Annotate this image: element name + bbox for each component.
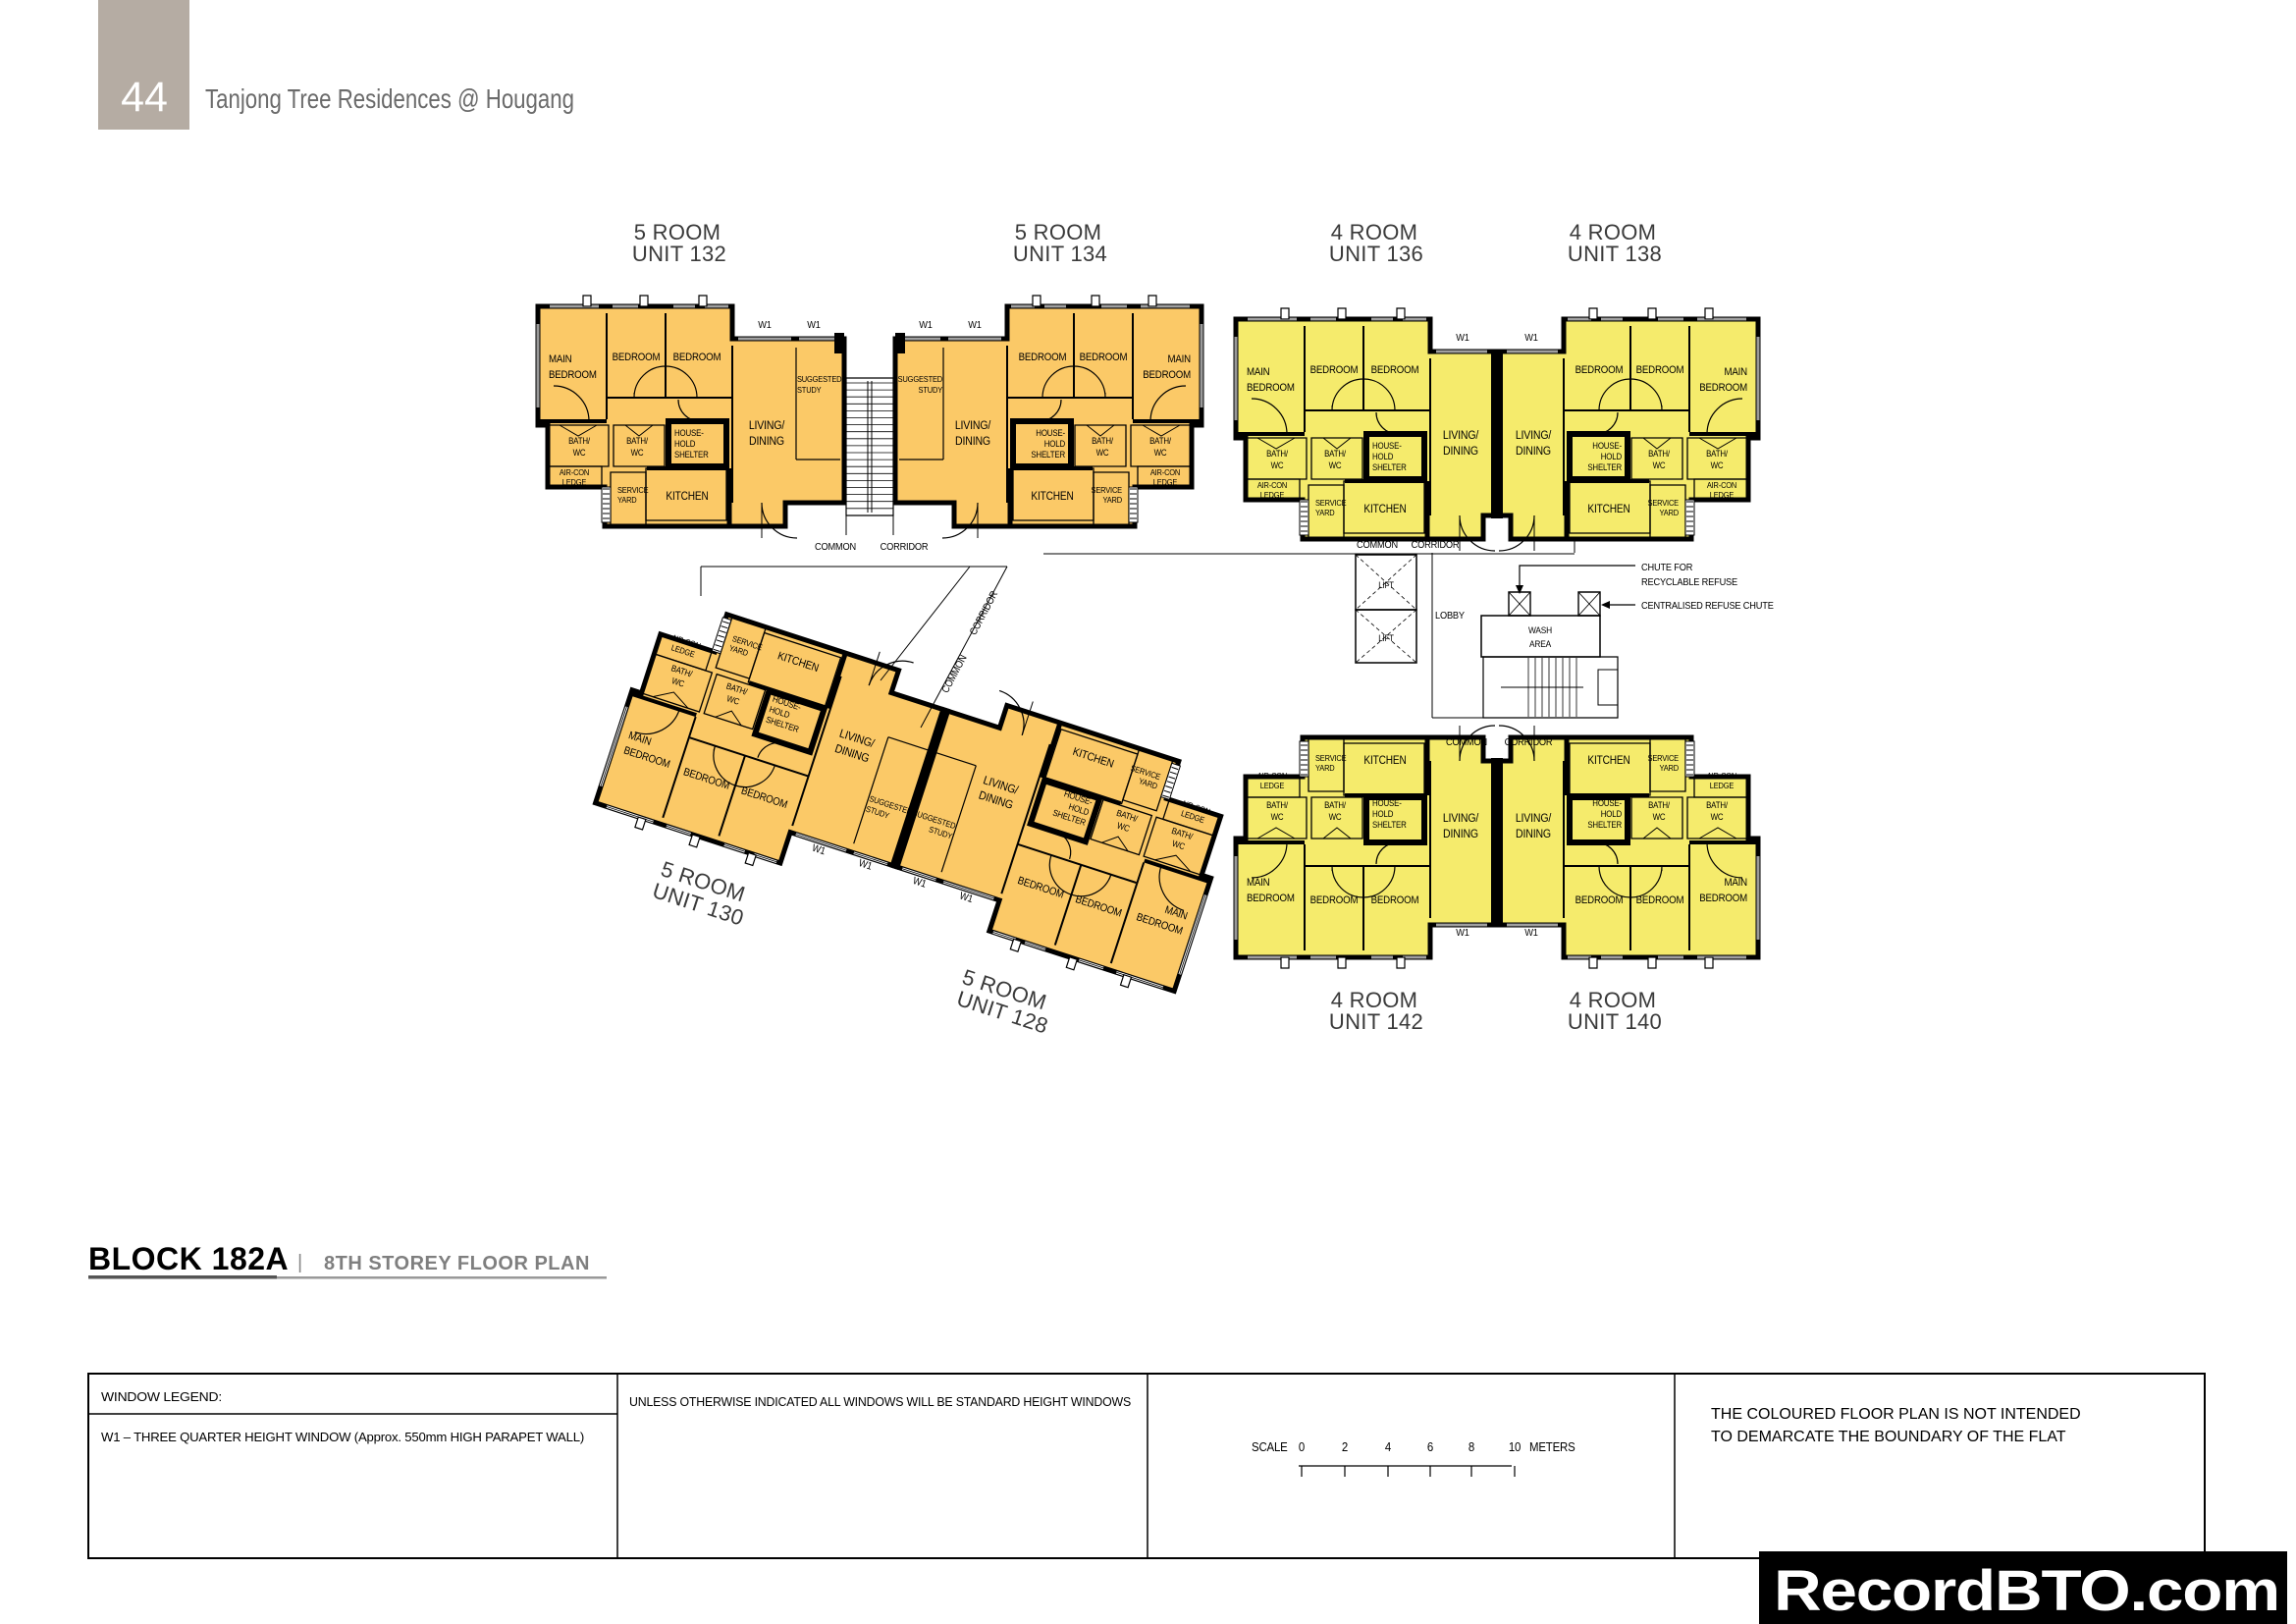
svg-text:HOLD: HOLD	[1372, 452, 1393, 462]
svg-text:MAIN: MAIN	[1247, 367, 1270, 379]
svg-text:AIR-CON: AIR-CON	[1707, 772, 1737, 782]
svg-text:BEDROOM: BEDROOM	[613, 352, 661, 364]
svg-text:CENTRALISED REFUSE CHUTE: CENTRALISED REFUSE CHUTE	[1641, 601, 1774, 613]
svg-text:BLOCK 182A: BLOCK 182A	[88, 1241, 289, 1276]
svg-text:BATH/: BATH/	[1266, 800, 1289, 811]
svg-text:SERVICE: SERVICE	[1648, 499, 1679, 509]
svg-text:BEDROOM: BEDROOM	[1699, 893, 1747, 905]
svg-text:BEDROOM: BEDROOM	[549, 370, 597, 382]
svg-text:BEDROOM: BEDROOM	[1371, 365, 1419, 377]
svg-text:THE COLOURED FLOOR PLAN IS NOT: THE COLOURED FLOOR PLAN IS NOT INTENDED	[1711, 1406, 2081, 1423]
svg-text:AIR-CON: AIR-CON	[1150, 468, 1181, 478]
svg-text:LIVING/: LIVING/	[1516, 429, 1552, 442]
svg-text:MAIN: MAIN	[1167, 354, 1191, 366]
svg-text:LEDGE: LEDGE	[562, 478, 586, 488]
svg-text:HOUSE-: HOUSE-	[1372, 798, 1402, 809]
svg-text:LIVING/: LIVING/	[749, 419, 785, 432]
svg-text:COMMON: COMMON	[1446, 737, 1487, 749]
svg-text:W1: W1	[1524, 928, 1538, 940]
svg-text:HOUSE-: HOUSE-	[1592, 441, 1622, 452]
svg-text:W1: W1	[807, 320, 821, 332]
svg-text:CORRIDOR: CORRIDOR	[1412, 540, 1460, 552]
svg-text:LEDGE: LEDGE	[1260, 491, 1284, 501]
svg-text:W1: W1	[968, 320, 982, 332]
svg-text:HOUSE-: HOUSE-	[1036, 428, 1065, 439]
svg-text:AIR-CON: AIR-CON	[1257, 481, 1288, 491]
svg-text:WC: WC	[1154, 448, 1167, 459]
svg-text:HOUSE-: HOUSE-	[674, 428, 704, 439]
svg-text:BEDROOM: BEDROOM	[1080, 352, 1128, 364]
svg-text:BEDROOM: BEDROOM	[1310, 895, 1359, 907]
svg-text:4: 4	[1385, 1439, 1392, 1454]
svg-text:YARD: YARD	[1315, 509, 1335, 518]
svg-text:BEDROOM: BEDROOM	[1310, 365, 1359, 377]
svg-text:TO DEMARCATE THE BOUNDARY OF T: TO DEMARCATE THE BOUNDARY OF THE FLAT	[1711, 1429, 2066, 1445]
svg-text:HOLD: HOLD	[674, 439, 695, 450]
svg-text:DINING: DINING	[1443, 445, 1478, 458]
svg-text:44: 44	[121, 74, 168, 121]
svg-text:BEDROOM: BEDROOM	[1575, 365, 1624, 377]
svg-text:STUDY: STUDY	[797, 386, 822, 396]
svg-text:SERVICE: SERVICE	[1648, 754, 1679, 764]
svg-text:10: 10	[1509, 1439, 1522, 1454]
svg-text:DINING: DINING	[1516, 445, 1551, 458]
svg-text:MAIN: MAIN	[549, 354, 572, 366]
svg-text:UNIT 136: UNIT 136	[1329, 242, 1423, 266]
svg-text:YARD: YARD	[1659, 509, 1679, 518]
svg-text:HOUSE-: HOUSE-	[1372, 441, 1402, 452]
svg-text:WC: WC	[1329, 812, 1342, 823]
svg-text:LIVING/: LIVING/	[1516, 812, 1552, 825]
svg-text:DINING: DINING	[749, 435, 784, 448]
svg-text:BATH/: BATH/	[1648, 800, 1671, 811]
svg-text:BEDROOM: BEDROOM	[1371, 895, 1419, 907]
svg-text:CORRIDOR: CORRIDOR	[881, 542, 929, 554]
svg-text:8: 8	[1468, 1439, 1475, 1454]
svg-text:WC: WC	[1711, 812, 1724, 823]
svg-text:BEDROOM: BEDROOM	[673, 352, 721, 364]
svg-text:0: 0	[1299, 1439, 1306, 1454]
svg-text:BEDROOM: BEDROOM	[1247, 383, 1295, 395]
svg-text:DINING: DINING	[955, 435, 990, 448]
svg-text:LIVING/: LIVING/	[1443, 429, 1479, 442]
svg-text:WC: WC	[1329, 460, 1342, 471]
svg-text:AIR-CON: AIR-CON	[560, 468, 590, 478]
svg-text:LIFT: LIFT	[1378, 633, 1394, 644]
svg-text:UNIT 142: UNIT 142	[1329, 1009, 1423, 1034]
svg-text:SHELTER: SHELTER	[1587, 820, 1622, 831]
svg-text:UNIT 140: UNIT 140	[1568, 1009, 1662, 1034]
svg-text:BATH/: BATH/	[1324, 800, 1347, 811]
svg-text:KITCHEN: KITCHEN	[1587, 754, 1629, 767]
svg-text:METERS: METERS	[1529, 1439, 1575, 1454]
svg-text:BATH/: BATH/	[1092, 436, 1114, 447]
svg-text:SUGGESTED: SUGGESTED	[898, 375, 943, 385]
svg-text:MAIN: MAIN	[1247, 878, 1270, 890]
svg-text:UNIT 132: UNIT 132	[632, 242, 726, 266]
svg-text:MAIN: MAIN	[1724, 878, 1747, 890]
svg-text:MAIN: MAIN	[1724, 367, 1747, 379]
svg-text:|: |	[297, 1252, 302, 1273]
svg-text:6: 6	[1427, 1439, 1434, 1454]
svg-text:WC: WC	[573, 448, 586, 459]
svg-text:HOLD: HOLD	[1372, 809, 1393, 820]
svg-text:WASH: WASH	[1528, 625, 1552, 636]
svg-text:LIFT: LIFT	[1378, 580, 1394, 591]
svg-text:UNLESS OTHERWISE INDICATED ALL: UNLESS OTHERWISE INDICATED ALL WINDOWS W…	[629, 1394, 1131, 1409]
svg-text:LEDGE: LEDGE	[1710, 782, 1734, 791]
svg-text:UNIT 138: UNIT 138	[1568, 242, 1662, 266]
svg-text:LOBBY: LOBBY	[1435, 611, 1465, 623]
svg-text:W1 – THREE QUARTER HEIGHT WIND: W1 – THREE QUARTER HEIGHT WINDOW (Approx…	[101, 1431, 584, 1444]
svg-text:2: 2	[1342, 1439, 1349, 1454]
svg-text:SERVICE: SERVICE	[1315, 754, 1346, 764]
svg-text:BATH/: BATH/	[1324, 449, 1347, 460]
svg-text:SUGGESTED: SUGGESTED	[797, 375, 842, 385]
svg-text:LIVING/: LIVING/	[1443, 812, 1479, 825]
svg-text:SHELTER: SHELTER	[1587, 462, 1622, 473]
svg-text:COMMON: COMMON	[1357, 540, 1398, 552]
svg-text:BEDROOM: BEDROOM	[1247, 893, 1295, 905]
svg-text:BATH/: BATH/	[1706, 800, 1729, 811]
svg-text:WC: WC	[1711, 460, 1724, 471]
svg-text:RecordBTO.com: RecordBTO.com	[1774, 1559, 2279, 1623]
svg-text:8TH STOREY FLOOR PLAN: 8TH STOREY FLOOR PLAN	[324, 1253, 590, 1274]
svg-text:DINING: DINING	[1443, 828, 1478, 840]
svg-text:SHELTER: SHELTER	[1372, 820, 1407, 831]
svg-text:CHUTE FOR: CHUTE FOR	[1641, 563, 1692, 574]
svg-text:W1: W1	[1524, 333, 1538, 345]
svg-text:KITCHEN: KITCHEN	[1031, 490, 1073, 503]
svg-text:WC: WC	[1271, 460, 1284, 471]
svg-text:WC: WC	[631, 448, 644, 459]
svg-text:WC: WC	[1653, 460, 1666, 471]
svg-text:SHELTER: SHELTER	[674, 450, 709, 460]
svg-text:RECYCLABLE REFUSE: RECYCLABLE REFUSE	[1641, 577, 1738, 589]
svg-text:BATH/: BATH/	[626, 436, 649, 447]
svg-text:BATH/: BATH/	[1149, 436, 1172, 447]
svg-text:W1: W1	[1456, 333, 1469, 345]
svg-text:BEDROOM: BEDROOM	[1699, 383, 1747, 395]
svg-text:BATH/: BATH/	[1706, 449, 1729, 460]
svg-text:BATH/: BATH/	[1648, 449, 1671, 460]
svg-text:CORRIDOR: CORRIDOR	[1505, 737, 1553, 749]
svg-text:YARD: YARD	[1102, 496, 1122, 506]
svg-text:AIR-CON: AIR-CON	[1707, 481, 1737, 491]
svg-text:HOUSE-: HOUSE-	[1592, 798, 1622, 809]
svg-text:BATH/: BATH/	[568, 436, 591, 447]
svg-text:LEDGE: LEDGE	[1710, 491, 1734, 501]
svg-text:DINING: DINING	[1516, 828, 1551, 840]
svg-text:LEDGE: LEDGE	[1153, 478, 1177, 488]
svg-text:KITCHEN: KITCHEN	[1363, 503, 1406, 515]
svg-text:SHELTER: SHELTER	[1031, 450, 1065, 460]
svg-text:SERVICE: SERVICE	[1092, 486, 1122, 496]
svg-text:WC: WC	[1096, 448, 1109, 459]
svg-text:YARD: YARD	[617, 496, 637, 506]
svg-text:UNIT 134: UNIT 134	[1013, 242, 1107, 266]
svg-text:W1: W1	[1456, 928, 1469, 940]
svg-text:LEDGE: LEDGE	[1260, 782, 1284, 791]
svg-text:KITCHEN: KITCHEN	[1363, 754, 1406, 767]
svg-text:HOLD: HOLD	[1601, 809, 1622, 820]
svg-text:WINDOW LEGEND:: WINDOW LEGEND:	[101, 1389, 222, 1404]
svg-text:HOLD: HOLD	[1044, 439, 1065, 450]
svg-text:WC: WC	[1271, 812, 1284, 823]
svg-text:AIR-CON: AIR-CON	[1257, 772, 1288, 782]
svg-text:WC: WC	[1653, 812, 1666, 823]
svg-text:BEDROOM: BEDROOM	[1575, 895, 1624, 907]
svg-text:BEDROOM: BEDROOM	[1143, 370, 1191, 382]
svg-text:YARD: YARD	[1315, 764, 1335, 774]
svg-text:LIVING/: LIVING/	[955, 419, 991, 432]
svg-text:BEDROOM: BEDROOM	[1019, 352, 1067, 364]
svg-text:YARD: YARD	[1659, 764, 1679, 774]
svg-text:COMMON: COMMON	[815, 542, 856, 554]
svg-text:W1: W1	[919, 320, 933, 332]
svg-text:KITCHEN: KITCHEN	[666, 490, 708, 503]
svg-text:AREA: AREA	[1529, 639, 1551, 650]
svg-text:Tanjong Tree Residences @ Houg: Tanjong Tree Residences @ Hougang	[205, 83, 574, 114]
svg-text:W1: W1	[758, 320, 772, 332]
svg-text:SERVICE: SERVICE	[617, 486, 648, 496]
svg-text:SCALE: SCALE	[1252, 1439, 1288, 1454]
svg-text:BEDROOM: BEDROOM	[1636, 365, 1684, 377]
svg-text:KITCHEN: KITCHEN	[1587, 503, 1629, 515]
svg-text:SERVICE: SERVICE	[1315, 499, 1346, 509]
svg-text:BEDROOM: BEDROOM	[1636, 895, 1684, 907]
svg-text:STUDY: STUDY	[919, 386, 943, 396]
svg-text:SHELTER: SHELTER	[1372, 462, 1407, 473]
svg-text:HOLD: HOLD	[1601, 452, 1622, 462]
svg-text:BATH/: BATH/	[1266, 449, 1289, 460]
